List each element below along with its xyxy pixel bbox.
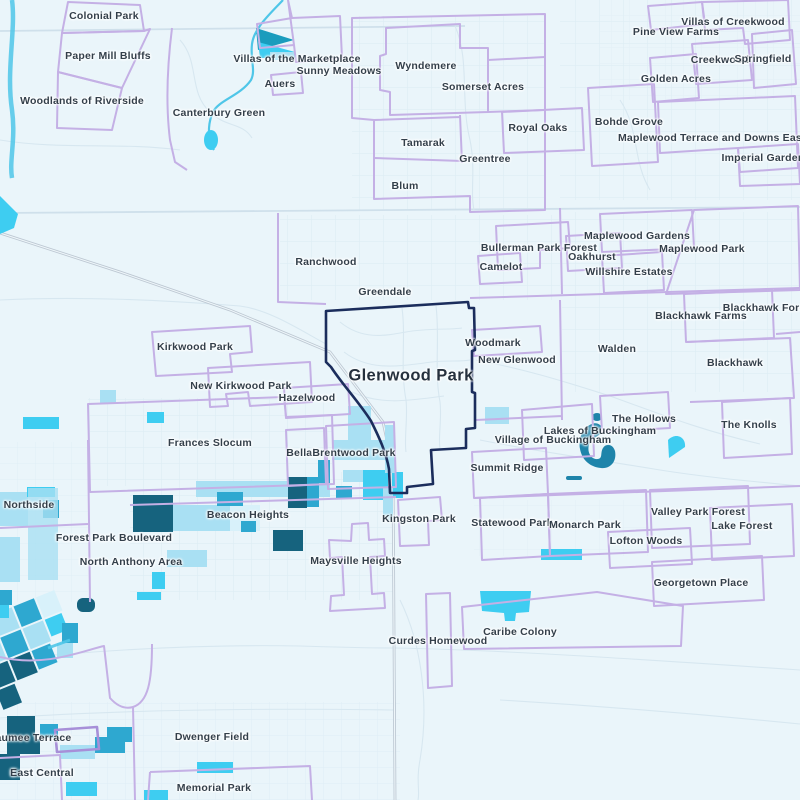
map-graphics — [0, 0, 800, 800]
canterbury-pond — [204, 130, 218, 150]
map-canvas[interactable]: Colonial ParkPaper Mill BluffsWoodlands … — [0, 0, 800, 800]
